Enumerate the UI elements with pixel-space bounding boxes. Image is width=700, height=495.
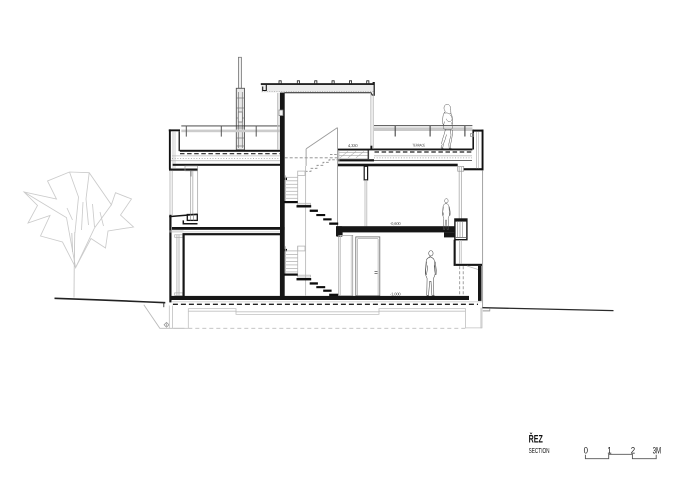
svg-text:SECTION: SECTION <box>529 446 550 455</box>
svg-text:-0,600: -0,600 <box>390 221 401 226</box>
svg-text:-1,000: -1,000 <box>390 292 401 297</box>
svg-text:0: 0 <box>584 445 588 455</box>
svg-text:TERRACE: TERRACE <box>412 144 425 148</box>
svg-text:ŘEZ: ŘEZ <box>529 433 543 446</box>
svg-text:3M: 3M <box>653 445 662 455</box>
svg-text:4,330: 4,330 <box>348 143 358 148</box>
